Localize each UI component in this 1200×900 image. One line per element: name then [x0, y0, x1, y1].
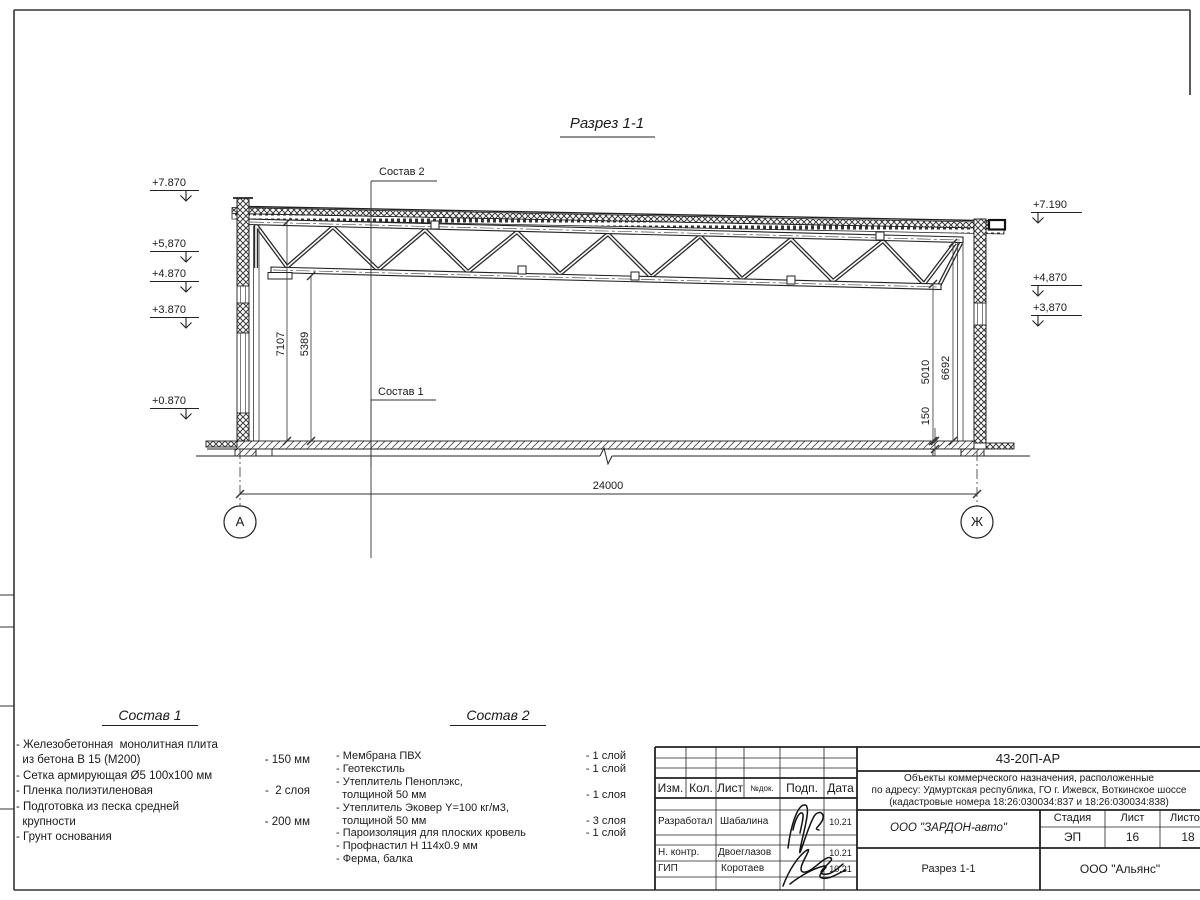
stamp-sheet-value: 16: [1105, 830, 1160, 844]
elevation-mark: +0.870: [150, 395, 199, 409]
label-sostav2: Состав 2: [379, 166, 425, 178]
stamp-role: ГИП: [658, 863, 716, 874]
stamp-date: 10.21: [824, 848, 857, 858]
dim-height-6692: 6692: [940, 343, 952, 393]
legend-item-text: - Пароизоляция для плоских кровель: [336, 827, 586, 840]
legend-item-text: толщиной 50 мм: [336, 789, 586, 802]
stamp-org: ООО "ЗАРДОН-авто": [859, 822, 1038, 834]
legend-item-value: - 1 слой: [586, 827, 626, 840]
stamp-role: Н. контр.: [658, 847, 716, 858]
elevation-mark: +7.870: [150, 177, 199, 191]
legend-row: толщиной 50 мм - 1 слоя: [336, 789, 626, 802]
elevation-mark: +3.870: [150, 304, 199, 318]
legend2-title: Состав 2: [450, 707, 546, 726]
stamp-sheet-label: Лист: [1105, 812, 1160, 824]
legend-row: из бетона В 15 (М200) - 150 мм: [16, 753, 310, 768]
legend-row: - Пароизоляция для плоских кровель - 1 с…: [336, 827, 626, 840]
dim-slab-150: 150: [920, 398, 932, 434]
label-sostav1: Состав 1: [378, 386, 424, 398]
legend-item-text: - Мембрана ПВХ: [336, 750, 586, 763]
legend-item-value: - 200 мм: [265, 815, 310, 830]
stamp-date: 10.21: [824, 864, 857, 874]
legend-row: - Сетка армирующая Ø5 100х100 мм: [16, 769, 310, 784]
legend-item-value: - 1 слоя: [586, 789, 626, 802]
axis-a: А: [224, 514, 256, 529]
legend-item-text: - Грунт основания: [16, 830, 310, 845]
legend2-list: - Мембрана ПВХ - 1 слой - Геотекстиль - …: [336, 750, 626, 866]
stamp-name: Шабалина: [720, 816, 778, 827]
legend-row: - Утеплитель Пеноплэкс,: [336, 776, 626, 789]
legend-row: - Железобетонная монолитная плита: [16, 738, 310, 753]
legend1-list: - Железобетонная монолитная плита из бет…: [16, 738, 310, 846]
elevation-mark: +4.870: [150, 268, 199, 282]
composition-leaders: [371, 181, 437, 558]
elevation-mark: +3,870: [1031, 302, 1082, 316]
legend-row: - Утеплитель Эковер Y=100 кг/м3,: [336, 802, 626, 815]
legend-item-text: - Ферма, балка: [336, 853, 626, 866]
stamp-description-line: (кадастровые номера 18:26:030034:837 и 1…: [858, 797, 1200, 808]
legend-item-value: - 1 слой: [586, 750, 626, 763]
legend-item-value: - 150 мм: [265, 753, 310, 768]
stamp-header-kol: Кол.: [686, 781, 716, 795]
stamp-header-list: Лист: [716, 781, 744, 795]
legend-item-text: - Пленка полиэтиленовая: [16, 784, 265, 799]
legend-item-value: - 1 слой: [586, 763, 626, 776]
legend-row: - Подготовка из песка средней: [16, 800, 310, 815]
stamp-date: 10.21: [824, 817, 857, 827]
elevation-mark: +7.190: [1031, 199, 1082, 213]
legend-row: - Пленка полиэтиленовая - 2 слоя: [16, 784, 310, 799]
legend-item-text: толщиной 50 мм: [336, 815, 586, 828]
drawing-sheet: Разрез 1-1 Состав 2 Состав 1 +7.870 +5,8…: [0, 0, 1200, 900]
elevation-mark: +4,870: [1031, 272, 1082, 286]
floor-slab: [196, 441, 1030, 464]
stamp-stage-value: ЭП: [1040, 830, 1105, 844]
legend-item-text: - Утеплитель Эковер Y=100 кг/м3,: [336, 802, 626, 815]
section-title: Разрез 1-1: [557, 115, 657, 132]
elevation-mark: +5,870: [150, 238, 199, 252]
right-wall: [958, 219, 987, 443]
stamp-role: Разработал: [658, 816, 716, 827]
legend-item-text: крупности: [16, 815, 265, 830]
legend-item-text: - Утеплитель Пеноплэкс,: [336, 776, 626, 789]
stamp-name: Коротаев: [721, 863, 779, 874]
stamp-stage-label: Стадия: [1040, 812, 1105, 824]
legend-row: - Профнастил Н 114х0.9 мм: [336, 840, 626, 853]
legend-row: - Геотекстиль - 1 слой: [336, 763, 626, 776]
legend-item-text: - Подготовка из песка средней: [16, 800, 310, 815]
stamp-sheets-value: 18: [1160, 830, 1200, 844]
legend-row: - Мембрана ПВХ - 1 слой: [336, 750, 626, 763]
legend-item-text: из бетона В 15 (М200): [16, 753, 265, 768]
axis-zh: Ж: [961, 514, 993, 529]
stamp-description-line: Объекты коммерческого назначения, распол…: [858, 773, 1200, 784]
stamp-sheets-label: Листов: [1170, 812, 1200, 824]
stamp-firm: ООО "Альянс": [1040, 862, 1200, 876]
stamp-header-podp: Подп.: [780, 781, 824, 795]
stamp-header-izm: Изм.: [655, 781, 686, 795]
legend-item-text: - Сетка армирующая Ø5 100х100 мм: [16, 769, 310, 784]
legend-item-text: - Профнастил Н 114х0.9 мм: [336, 840, 626, 853]
legend-item-text: - Геотекстиль: [336, 763, 586, 776]
legend-row: крупности - 200 мм: [16, 815, 310, 830]
legend1-title: Состав 1: [102, 707, 198, 726]
legend-item-value: - 2 слоя: [265, 784, 310, 799]
stamp-sheet-title: Разрез 1-1: [859, 863, 1038, 875]
stamp-header-data: Дата: [824, 781, 857, 795]
stamp-header-ndok: №док.: [744, 784, 780, 793]
dim-height-5389: 5389: [299, 319, 311, 369]
legend-row: толщиной 50 мм - 3 слоя: [336, 815, 626, 828]
vertical-dimensions: [283, 218, 957, 456]
legend-row: - Грунт основания: [16, 830, 310, 845]
legend-item-value: - 3 слоя: [586, 815, 626, 828]
stamp-doc-code: 43-20П-АР: [860, 751, 1196, 766]
dim-height-7107: 7107: [275, 319, 287, 369]
legend-row: - Ферма, балка: [336, 853, 626, 866]
stamp-name: Двоеглазов: [718, 847, 778, 858]
legend-item-text: - Железобетонная монолитная плита: [16, 738, 310, 753]
dim-span-24000: 24000: [578, 480, 638, 492]
dim-height-5010: 5010: [920, 347, 932, 397]
stamp-description-line: по адресу: Удмуртская республика, ГО г. …: [858, 785, 1200, 796]
